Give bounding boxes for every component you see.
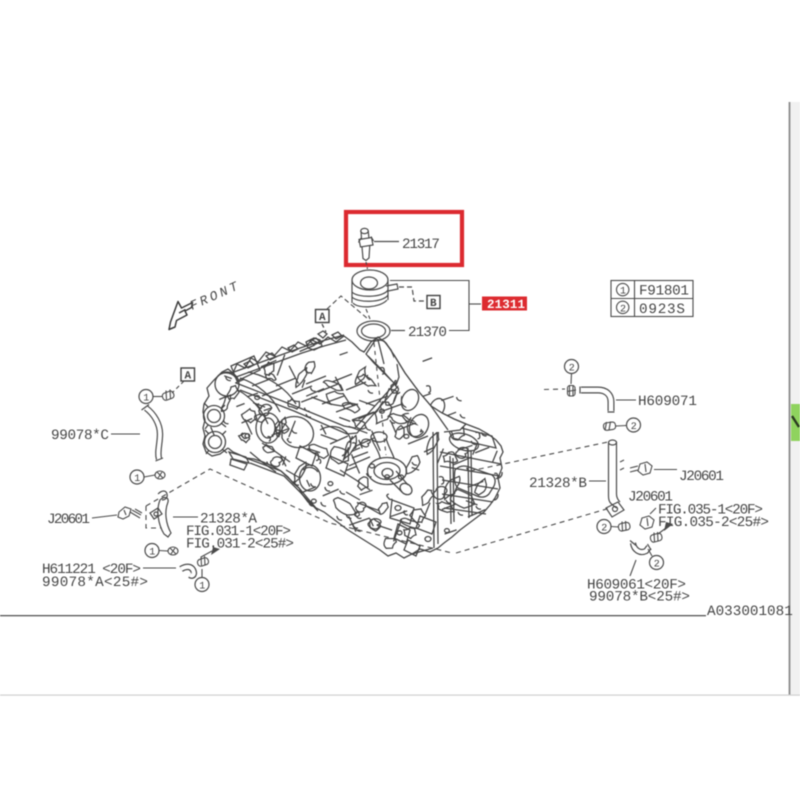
svg-text:A: A <box>319 312 326 324</box>
svg-text:J20601: J20601 <box>679 469 724 485</box>
svg-text:1: 1 <box>199 582 205 593</box>
svg-text:2: 2 <box>631 422 637 433</box>
svg-text:21311: 21311 <box>487 298 525 312</box>
svg-text:FIG.035-2<25#>: FIG.035-2<25#> <box>658 515 769 531</box>
svg-text:2: 2 <box>620 305 626 316</box>
svg-text:21317: 21317 <box>402 237 440 253</box>
svg-text:A: A <box>185 371 192 383</box>
svg-text:21328*B: 21328*B <box>529 476 587 492</box>
svg-text:J20601: J20601 <box>47 512 90 528</box>
svg-text:A033001081: A033001081 <box>707 604 793 620</box>
svg-text:2: 2 <box>654 560 660 571</box>
svg-text:1: 1 <box>143 394 149 405</box>
svg-text:1: 1 <box>149 548 155 559</box>
svg-text:2: 2 <box>601 524 607 535</box>
svg-text:1: 1 <box>620 287 626 298</box>
svg-text:0923S: 0923S <box>639 302 685 318</box>
svg-text:99078*C: 99078*C <box>51 428 109 444</box>
svg-text:21370: 21370 <box>408 325 447 341</box>
svg-text:99078*A<25#>: 99078*A<25#> <box>42 575 148 591</box>
svg-text:1: 1 <box>134 474 140 485</box>
svg-text:99078*B<25#>: 99078*B<25#> <box>589 590 690 606</box>
svg-text:2: 2 <box>569 364 575 375</box>
svg-text:FIG.031-2<25#>: FIG.031-2<25#> <box>186 537 294 553</box>
svg-text:F91801: F91801 <box>639 284 689 300</box>
svg-text:B: B <box>430 298 437 310</box>
svg-text:H609071: H609071 <box>638 394 697 410</box>
